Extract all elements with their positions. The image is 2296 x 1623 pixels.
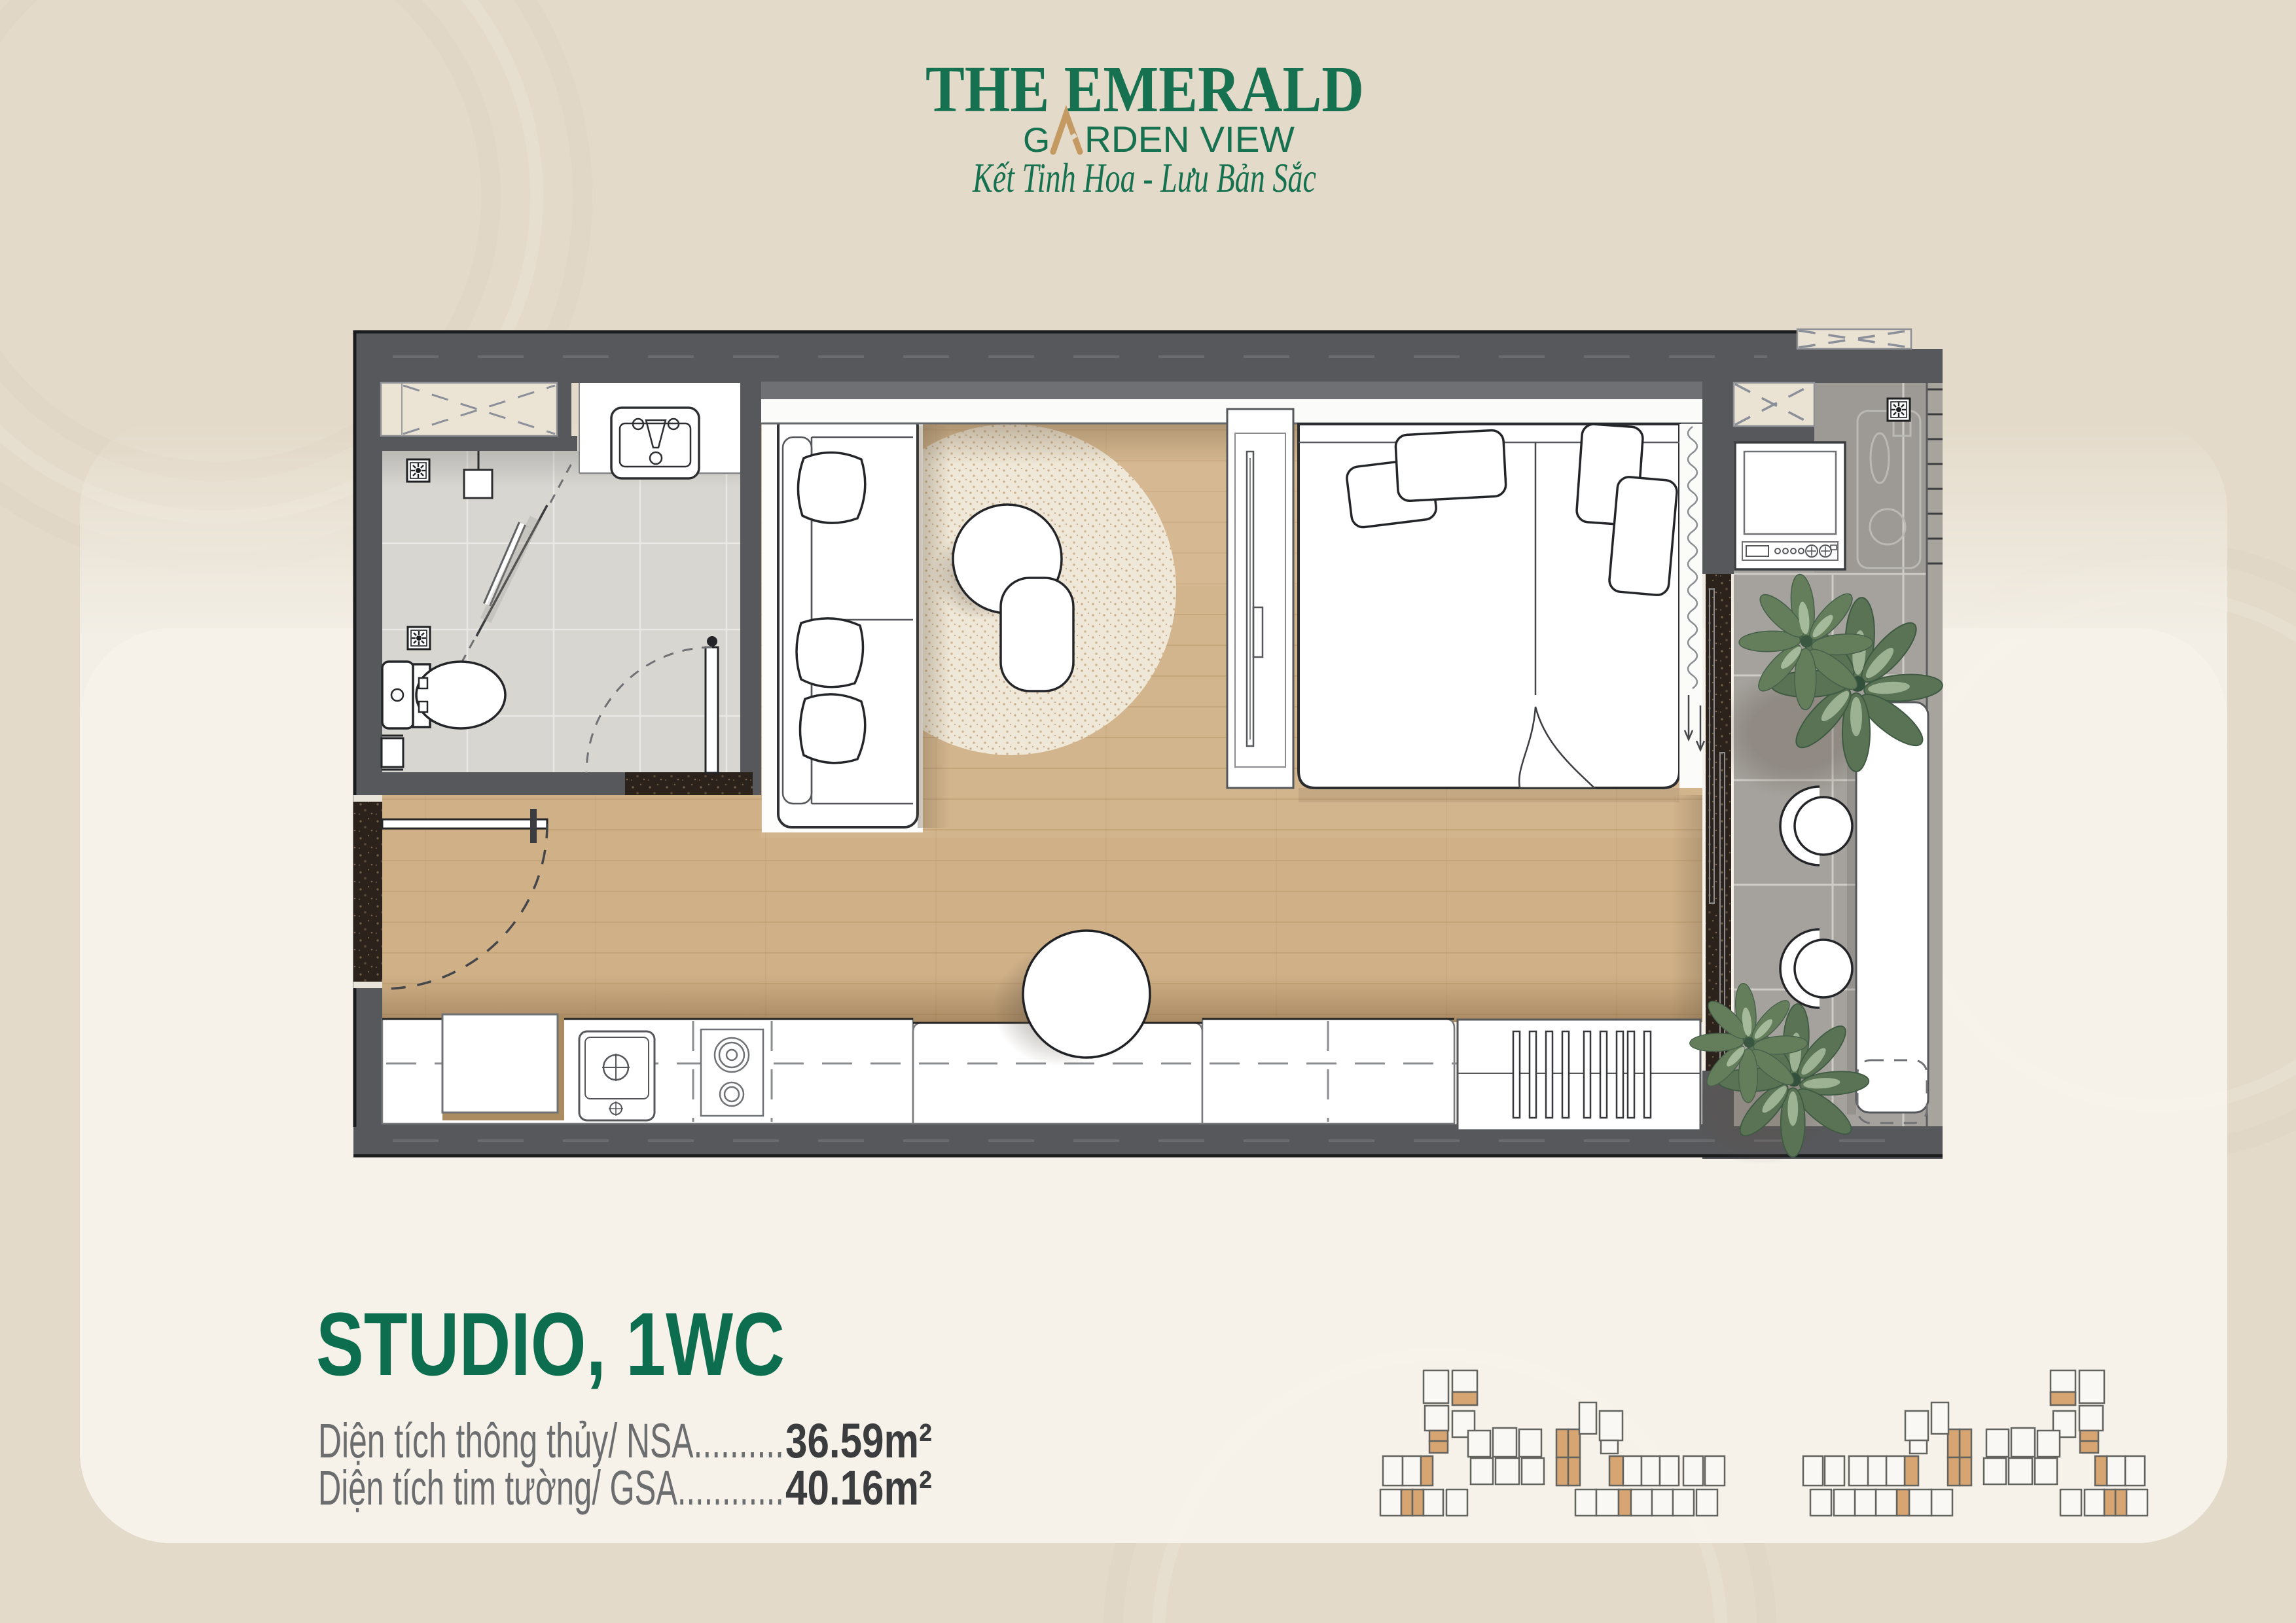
svg-text:Diện tích thông thủy/ NSA.....: Diện tích thông thủy/ NSA.......... xyxy=(318,1414,784,1468)
svg-text:THE EMERALD: THE EMERALD xyxy=(925,52,1364,126)
svg-text:STUDIO, 1WC: STUDIO, 1WC xyxy=(316,1294,785,1395)
svg-text:Kết Tinh Hoa - Lưu Bản Sắc: Kết Tinh Hoa - Lưu Bản Sắc xyxy=(972,154,1316,201)
svg-text:RDEN VIEW: RDEN VIEW xyxy=(1085,118,1295,160)
svg-text:Diện tích tim tường/ GSA......: Diện tích tim tường/ GSA............ xyxy=(318,1461,784,1515)
svg-text:36.59m²: 36.59m² xyxy=(785,1414,932,1468)
svg-text:40.16m²: 40.16m² xyxy=(785,1461,932,1515)
